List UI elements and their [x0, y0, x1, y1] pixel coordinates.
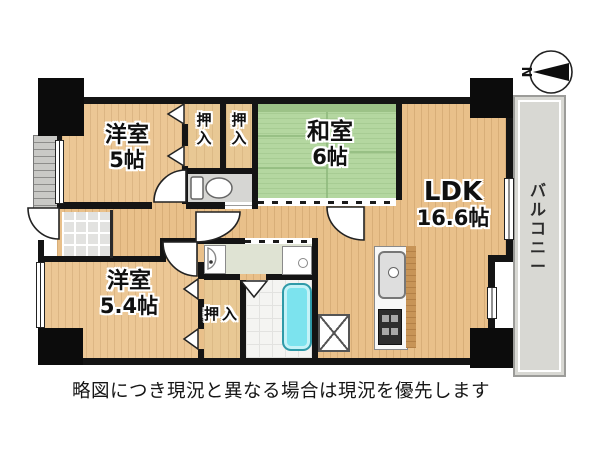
room-label-yoshitsu-54: 洋室 5.4帖 — [66, 270, 192, 318]
drain-icon — [298, 258, 308, 268]
washroom-sliding-door — [245, 238, 312, 244]
room-label-ldk: LDK 16.6帖 — [392, 178, 514, 231]
floorplan-canvas: N 洋室 5帖 和室 6帖 LDK 16.6帖 洋室 5.4帖 押入 押入 押入… — [0, 0, 600, 450]
wall — [40, 358, 513, 365]
wall — [160, 238, 204, 244]
wall — [160, 244, 166, 262]
room-size: 5帖 — [72, 149, 182, 173]
wall — [57, 97, 513, 104]
wall — [204, 274, 240, 280]
room-size: 16.6帖 — [392, 207, 514, 231]
pillar — [470, 78, 513, 118]
closet-text: 押入 — [202, 306, 242, 323]
window — [36, 262, 45, 328]
room-name: 洋室 — [72, 124, 182, 149]
wall — [488, 255, 513, 262]
genkan-step-edge — [110, 210, 113, 258]
wall — [182, 166, 188, 204]
closet-text: 押入 — [230, 112, 249, 147]
room-name: 和室 — [276, 120, 384, 146]
wall — [198, 349, 204, 358]
wall — [186, 202, 225, 209]
entrance-genkan — [62, 212, 110, 258]
wall — [182, 168, 258, 174]
room-name: 洋室 — [66, 270, 192, 295]
compass-north-label: N — [518, 67, 533, 78]
balcony-label: バルコニー — [527, 182, 549, 276]
refrigerator-space-icon — [318, 314, 350, 352]
closet-label: 押入 — [225, 112, 253, 147]
window — [487, 287, 497, 319]
disclaimer-text: 略図につき現況と異なる場合は現況を優先します — [72, 377, 490, 403]
room-size: 5.4帖 — [66, 295, 192, 319]
tatami-top-band — [258, 104, 396, 112]
window — [55, 140, 64, 204]
washing-machine-pan-icon — [282, 246, 312, 275]
bathtub-icon — [282, 283, 312, 351]
wall — [38, 256, 166, 262]
pillar — [470, 328, 513, 368]
entrance-door-arc-icon — [28, 208, 59, 239]
closet-label: 押入 — [188, 112, 220, 147]
wall — [57, 202, 152, 209]
room-label-yoshitsu-5: 洋室 5帖 — [72, 124, 182, 172]
fusuma-sliding-door — [258, 198, 396, 206]
balcony-text: バルコニー — [528, 182, 548, 276]
closet-label: 押入 — [202, 306, 242, 323]
stove-icon — [378, 309, 402, 345]
room-label-washitsu-6: 和室 6帖 — [276, 120, 384, 169]
pillar — [38, 328, 83, 365]
toilet-door — [225, 202, 252, 209]
washbasin-icon — [204, 245, 226, 274]
room-size: 6帖 — [276, 146, 384, 170]
toilet-room — [188, 174, 252, 202]
room-name: LDK — [392, 178, 514, 207]
kitchen-counter-side — [406, 246, 416, 348]
faucet-icon — [388, 267, 399, 278]
compass-icon: N — [518, 51, 572, 93]
wall — [204, 238, 245, 244]
closet-text: 押入 — [195, 112, 214, 147]
